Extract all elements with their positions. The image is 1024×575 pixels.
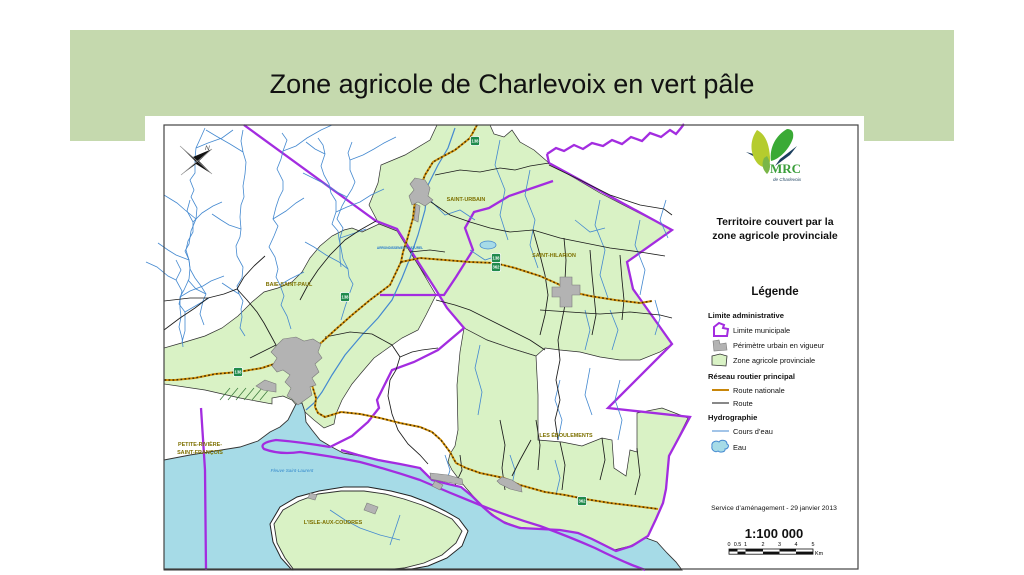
- svg-text:362: 362: [579, 499, 587, 504]
- svg-text:138: 138: [342, 295, 350, 300]
- svg-text:Route: Route: [733, 399, 753, 408]
- svg-text:MRC: MRC: [770, 161, 801, 176]
- svg-text:Route nationale: Route nationale: [733, 386, 785, 395]
- svg-text:3: 3: [778, 542, 781, 548]
- svg-text:N: N: [205, 145, 210, 152]
- svg-text:SAINT-HILARION: SAINT-HILARION: [532, 253, 576, 259]
- svg-text:Limite administrative: Limite administrative: [708, 311, 784, 320]
- svg-text:Limite municipale: Limite municipale: [733, 326, 790, 335]
- svg-text:de Charlevoix: de Charlevoix: [773, 177, 802, 182]
- svg-text:zone agricole provinciale: zone agricole provinciale: [712, 230, 838, 242]
- svg-text:5: 5: [812, 542, 815, 548]
- svg-text:Hydrographie: Hydrographie: [708, 413, 757, 422]
- svg-text:4: 4: [795, 542, 798, 548]
- svg-text:0.5: 0.5: [734, 542, 742, 548]
- svg-text:0: 0: [728, 542, 731, 548]
- svg-text:1:100 000: 1:100 000: [745, 526, 804, 541]
- svg-text:Cours d’eau: Cours d’eau: [733, 427, 773, 436]
- svg-text:Service d’aménagement - 29 jan: Service d’aménagement - 29 janvier 2013: [711, 505, 837, 512]
- svg-text:Réseau routier principal: Réseau routier principal: [708, 372, 795, 381]
- svg-text:Légende: Légende: [751, 286, 798, 298]
- svg-text:SAINT-FRANÇOIS: SAINT-FRANÇOIS: [177, 450, 223, 456]
- svg-text:Fleuve Saint-Laurent: Fleuve Saint-Laurent: [271, 468, 314, 473]
- svg-text:L’ISLE-AUX-COUDRES: L’ISLE-AUX-COUDRES: [304, 520, 363, 526]
- svg-text:Km: Km: [815, 551, 824, 557]
- svg-text:138: 138: [472, 139, 480, 144]
- svg-text:SAINT-URBAIN: SAINT-URBAIN: [447, 197, 486, 203]
- svg-text:Territoire couvert par la: Territoire couvert par la: [716, 216, 833, 228]
- svg-text:Zone agricole provinciale: Zone agricole provinciale: [733, 356, 815, 365]
- svg-text:ARRONDISSEMENT NATUREL: ARRONDISSEMENT NATUREL: [377, 246, 423, 250]
- svg-text:138: 138: [235, 370, 243, 375]
- svg-text:Eau: Eau: [733, 443, 746, 452]
- svg-text:1: 1: [744, 542, 747, 548]
- svg-text:2: 2: [762, 542, 765, 548]
- svg-text:362: 362: [493, 265, 501, 270]
- svg-text:LES ÉBOULEMENTS: LES ÉBOULEMENTS: [539, 431, 593, 439]
- svg-text:Périmètre urbain en vigueur: Périmètre urbain en vigueur: [733, 341, 825, 350]
- svg-text:BAIE-SAINT-PAUL: BAIE-SAINT-PAUL: [266, 282, 313, 288]
- svg-text:PETITE-RIVIÈRE-: PETITE-RIVIÈRE-: [178, 440, 222, 448]
- svg-text:138: 138: [493, 256, 501, 261]
